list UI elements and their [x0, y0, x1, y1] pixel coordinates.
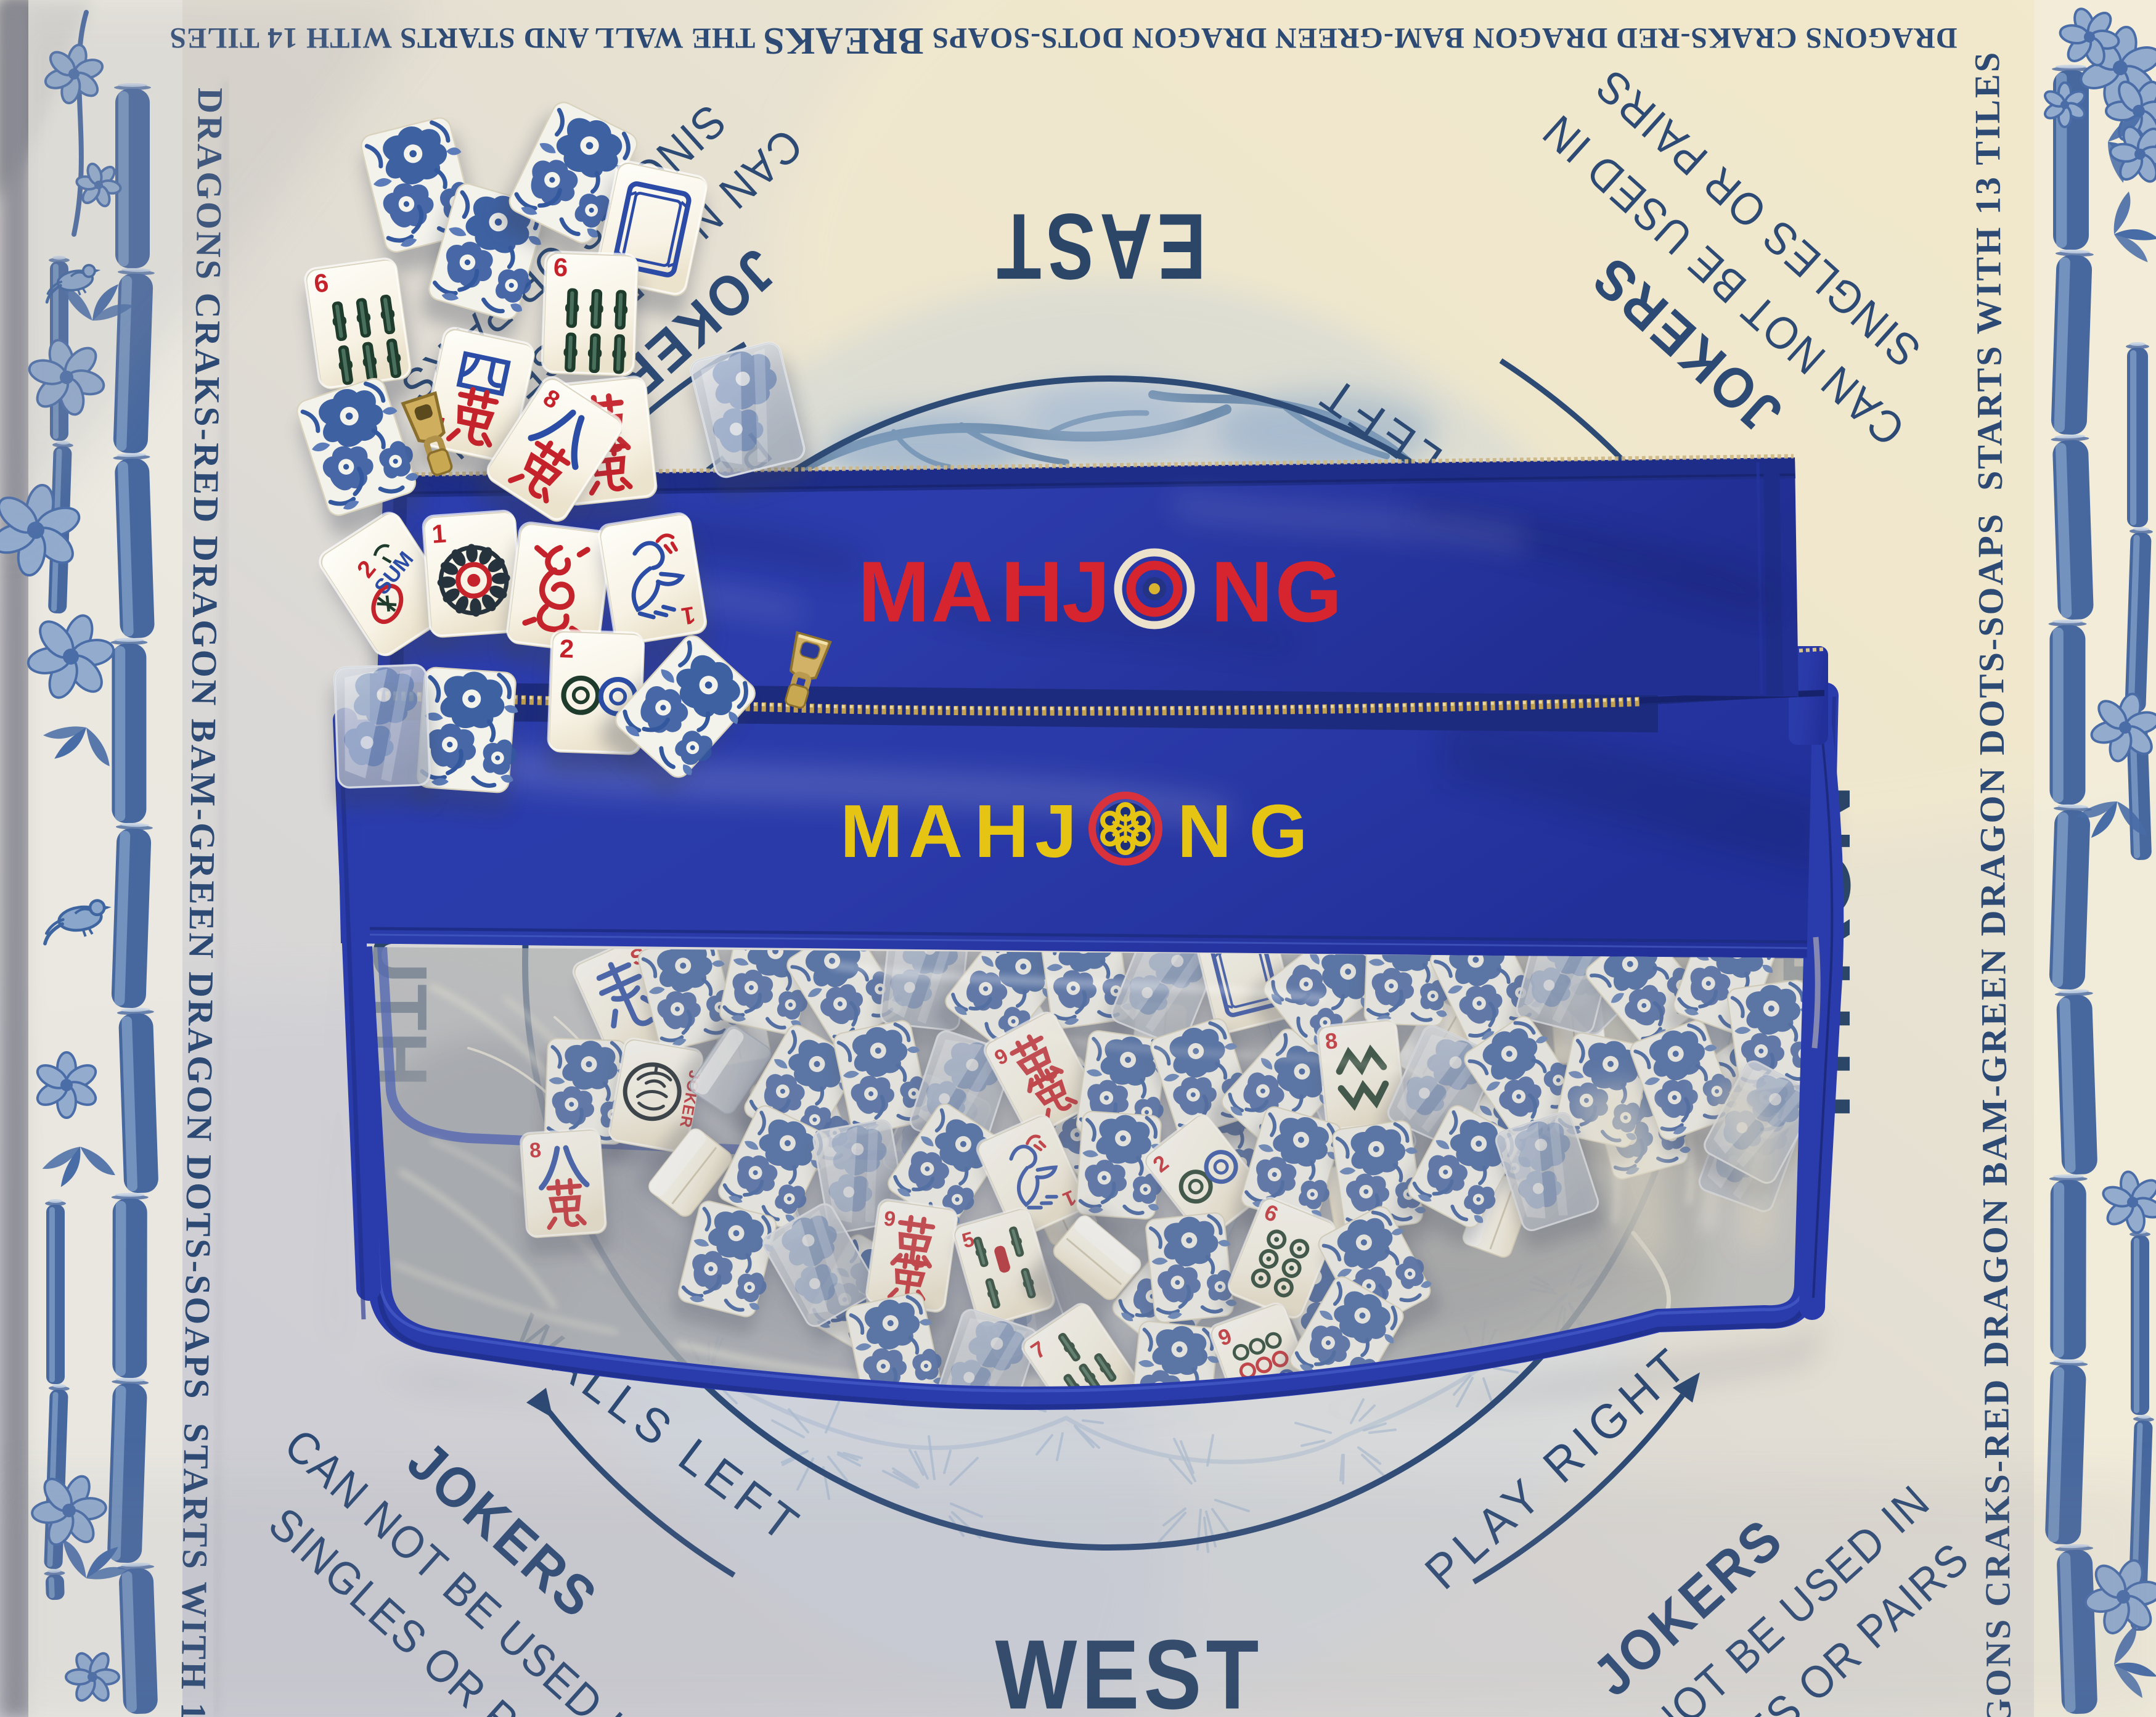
svg-text:A: A: [931, 543, 993, 640]
svg-text:2: 2: [559, 634, 574, 663]
svg-text:J: J: [1035, 789, 1077, 873]
svg-text:G: G: [1249, 789, 1308, 873]
svg-text:G: G: [1275, 543, 1342, 640]
svg-text:N: N: [1177, 789, 1231, 873]
svg-text:H: H: [974, 789, 1029, 873]
svg-text:J: J: [1062, 543, 1110, 640]
svg-text:A: A: [909, 789, 963, 873]
svg-text:1: 1: [431, 518, 447, 549]
svg-text:6: 6: [553, 253, 568, 282]
svg-text:N: N: [1211, 543, 1273, 640]
svg-text:EAST: EAST: [992, 194, 1206, 298]
svg-text:H: H: [1000, 543, 1063, 640]
svg-text:M: M: [858, 543, 930, 640]
svg-text:M: M: [840, 789, 903, 873]
